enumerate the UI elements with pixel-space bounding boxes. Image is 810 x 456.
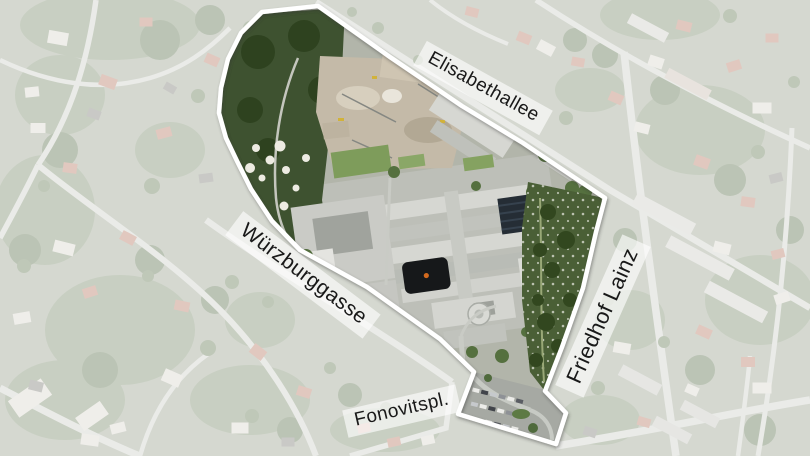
aerial-photo: [0, 0, 810, 456]
aerial-map: Elisabethallee Würzburggasse Friedhof La…: [0, 0, 810, 456]
